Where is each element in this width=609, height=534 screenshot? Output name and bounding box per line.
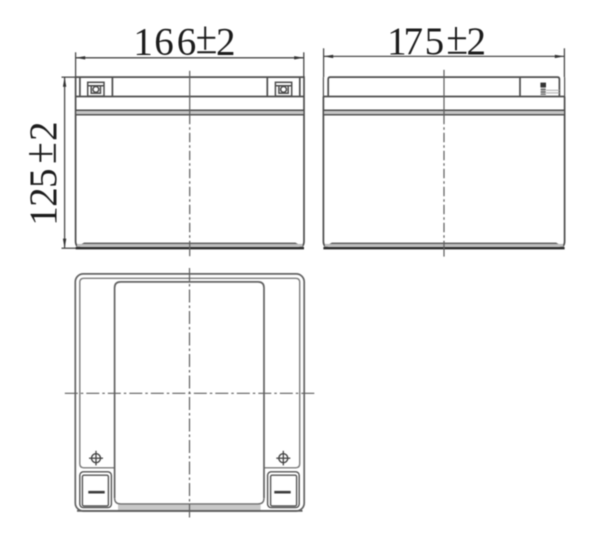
svg-text:1: 1 [133, 20, 153, 63]
svg-text:7: 7 [404, 20, 424, 63]
svg-text:2: 2 [22, 187, 65, 207]
svg-text:2: 2 [22, 122, 65, 142]
svg-text:6: 6 [154, 20, 174, 63]
svg-text:2: 2 [466, 20, 486, 63]
svg-text:6: 6 [177, 20, 197, 63]
svg-text:1: 1 [22, 206, 65, 226]
svg-text:5: 5 [22, 168, 65, 188]
svg-text:2: 2 [216, 20, 236, 63]
svg-text:5: 5 [425, 20, 445, 63]
